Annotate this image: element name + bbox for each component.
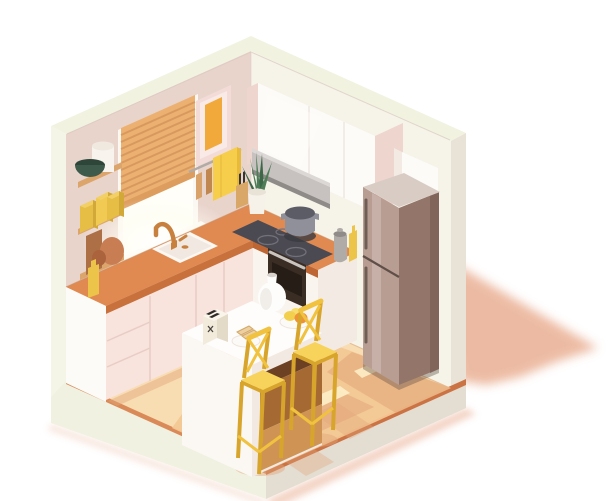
pot-handle-right: [315, 213, 319, 220]
wall-cut-face-left: [51, 126, 66, 406]
canister-top: [92, 142, 114, 151]
box-side: [119, 191, 124, 217]
hanging-utensil-2: [206, 167, 212, 195]
refrigerator: [363, 173, 440, 390]
lemon: [284, 311, 296, 321]
grinder-knob: [337, 228, 343, 232]
counter-end-face-right: [318, 252, 357, 358]
wall-cast-shadow: [450, 262, 598, 385]
oil-bottle-body: [349, 230, 357, 262]
pot-opening: [285, 207, 315, 220]
isometric-kitchen-scene: [0, 0, 612, 501]
fridge-highlight: [372, 193, 381, 374]
hanging-utensil-1: [196, 172, 202, 200]
plant-pot-rim: [248, 189, 266, 196]
kitchen-illustration: [0, 0, 612, 501]
vase-mouth: [267, 273, 277, 277]
cooking-pot: [281, 207, 319, 243]
cabinet-end-panel: [66, 287, 106, 402]
vase-shading: [260, 288, 272, 310]
frame-art: [205, 97, 222, 151]
bottle-body: [88, 264, 99, 298]
pot-handle-left: [281, 213, 285, 220]
sink-drain: [182, 245, 189, 249]
fridge-side-dark: [430, 192, 439, 373]
pepper-grinder: [334, 228, 348, 262]
grinder-body: [334, 233, 347, 262]
wall-cut-face-right: [451, 133, 466, 415]
